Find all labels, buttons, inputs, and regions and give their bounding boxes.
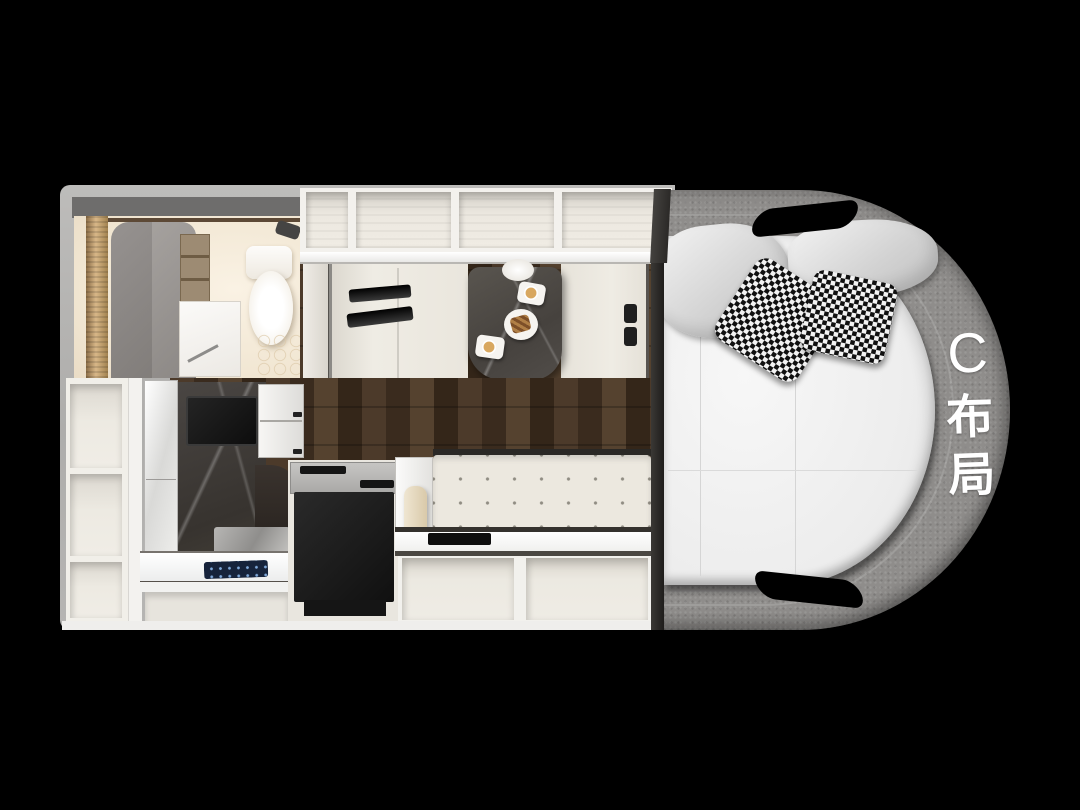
seat-belt-buckle	[624, 304, 637, 323]
cabinet-handle	[293, 412, 302, 417]
overhead-shelf-front-edge	[300, 252, 672, 264]
layout-label: C 布 局	[933, 323, 1008, 525]
shelf-compartment	[459, 192, 554, 248]
under-counter-cubby	[145, 592, 288, 622]
houndstooth-pillow-right	[798, 268, 899, 366]
bathroom-hex-tile-floor	[256, 334, 302, 377]
bathroom-top-wall	[72, 197, 304, 218]
dinette-bench-right	[561, 264, 649, 384]
mattress-seam	[668, 470, 918, 471]
shelf-compartment	[70, 384, 122, 468]
refrigerator-base	[304, 600, 386, 616]
seat-belt-buckle	[624, 327, 637, 346]
shelf-compartment	[356, 192, 451, 248]
shelf-compartment	[70, 474, 122, 556]
table-bowl	[502, 259, 534, 281]
coffee-cup	[524, 286, 538, 300]
cabin-base-edge	[62, 621, 674, 630]
cabinet-door-split	[260, 420, 302, 422]
bathroom-shelf-unit	[180, 234, 210, 302]
shelf-compartment	[70, 562, 122, 618]
refrigerator	[294, 492, 394, 602]
tufted-sofa-seat	[433, 455, 651, 532]
shower-tray	[179, 301, 241, 377]
rv-floorplan-scene: C 布 局	[0, 0, 1080, 810]
coffee-cup	[482, 340, 496, 354]
appliance-handle	[360, 480, 394, 488]
appliance-handle	[300, 466, 346, 474]
tv-screen	[186, 396, 258, 446]
cabinet-door-split	[146, 479, 176, 480]
shelf-compartment	[306, 192, 348, 248]
layout-label-char: 局	[947, 449, 996, 500]
cabinet-handle	[293, 449, 302, 454]
thermos-bottle	[404, 486, 427, 532]
bathroom-back-wall	[303, 264, 330, 385]
bathroom-light-strip	[86, 216, 108, 378]
layout-label-char: 布	[945, 391, 994, 442]
kitchen-counter-face	[140, 581, 290, 592]
storage-cubby	[526, 558, 648, 620]
cooktop-control-panel	[204, 560, 269, 579]
storage-cubby	[402, 558, 514, 620]
bed-partition-wall	[651, 260, 664, 630]
layout-label-char: C	[946, 323, 988, 383]
counter-inset-tray	[428, 533, 491, 545]
